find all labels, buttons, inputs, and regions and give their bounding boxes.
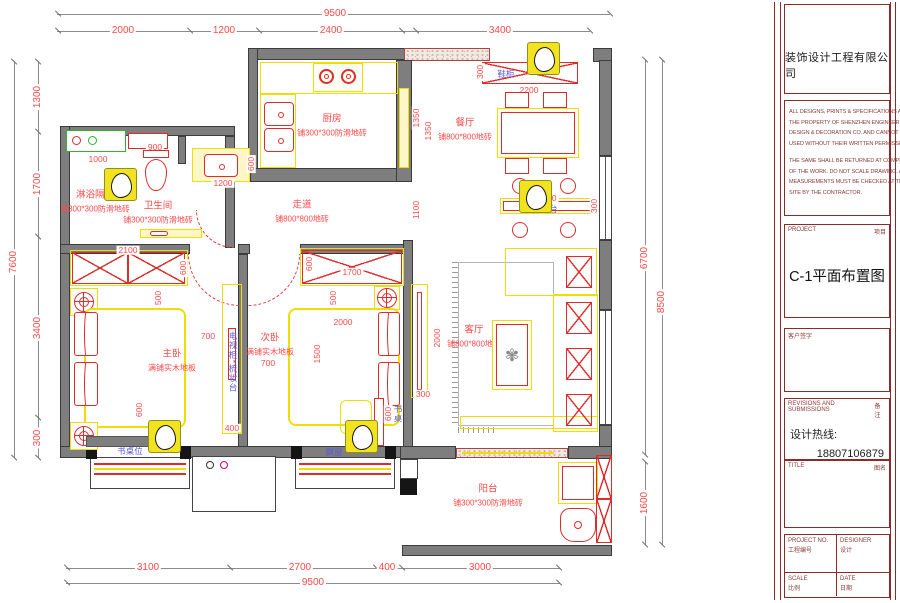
dim-bottom-4: 3000 (467, 563, 493, 573)
room-label-corridor: 走道 铺800*800地砖 (275, 198, 329, 225)
balcony-cabinet (596, 499, 612, 543)
dining-chair (505, 92, 529, 108)
sofa-pillow (566, 394, 592, 426)
glazing-line (299, 473, 391, 475)
date-label-en: DATE (840, 575, 886, 585)
disclaimer-line: MEASUREMENTS MUST BE CHECKED AT THE (789, 177, 885, 188)
company-box: 装饰设计工程有限公司 (784, 4, 890, 94)
bar-stool (560, 178, 576, 194)
title-label-en: TITLE (788, 463, 804, 472)
dim-master-wardrobe: 2100 (117, 246, 140, 255)
door-arc-second (248, 254, 300, 306)
disclaimer-line: ALL DESIGNS, PRINTS & SPECIFICATIONS ARE (789, 107, 885, 118)
dim-dresser: 400 (223, 424, 241, 433)
hotline-label: 设计热线: (790, 426, 884, 442)
room-name: 阳台 (453, 482, 523, 497)
scale-label-cn: 比例 (788, 585, 833, 595)
corridor-basin (204, 154, 238, 177)
project-label-en: PROJECT (788, 227, 816, 236)
disclaimer-line: DESIGN & DECORATION CO. AND CANNOT BE (789, 128, 885, 139)
dim-left-4: 300 (33, 428, 43, 449)
dim-right-total: 8500 (657, 289, 667, 315)
dim-top-1: 2000 (110, 26, 136, 36)
room-floor: 满铺实木地板 (246, 346, 294, 358)
sofa-pillow (566, 348, 592, 380)
callout-bubble-icon (345, 420, 378, 453)
dim-basin-depth: 600 (247, 155, 256, 173)
info-row-2: SCALE 比例 DATE 日期 (785, 573, 889, 596)
dim-right-seg: 6700 (640, 245, 650, 271)
dim-left-2: 1700 (33, 171, 43, 197)
glazing-line (94, 473, 186, 475)
date-label-cn: 日期 (840, 585, 886, 595)
room-name: 次卧 (246, 331, 294, 346)
master-wardrobe (128, 252, 185, 284)
project-no-label-cn: 工程编号 (788, 547, 833, 557)
room-floor: 铺300*300防滑地砖 (297, 127, 367, 139)
dim-vanity: 1000 (87, 155, 110, 164)
desk-spot-label: 书桌位 (117, 445, 143, 457)
disclaimer-line: SITE BY THE CONTRACTOR. (789, 188, 885, 199)
dim-master-wardrobe-depth: 600 (179, 259, 188, 277)
dim-master-side: 700 (199, 332, 217, 341)
date-cell: DATE 日期 (837, 573, 889, 596)
room-name: 厨房 (297, 112, 367, 127)
revisions-header: REVISIONS AND SUBMISSIONS 备注 (785, 399, 889, 420)
scale-label-en: SCALE (788, 575, 833, 585)
wall-top-kitchen (255, 48, 405, 60)
toilet-tank (143, 150, 169, 158)
drain-icon (574, 521, 582, 529)
mid-pier-box (192, 456, 276, 512)
pillow (74, 312, 98, 356)
kitchen-sink-bowl (264, 102, 294, 126)
dim-second-wardrobe-depth: 600 (305, 255, 314, 273)
room-name: 主卧 (148, 347, 196, 362)
wall-bath-stub (178, 136, 186, 164)
wall-bedroom-top-pier (238, 244, 250, 254)
dim-corridor-width: 1100 (412, 199, 421, 221)
stove-burner-icon (319, 69, 334, 84)
revisions-box: REVISIONS AND SUBMISSIONS 备注 设计热线: 18807… (784, 398, 890, 460)
kitchen-window-strip (399, 88, 409, 168)
stove-burner-icon (341, 69, 356, 84)
window-right-dining (599, 156, 612, 240)
dim-left-3: 3400 (33, 315, 43, 341)
designer-label-cn: 设计 (840, 547, 886, 557)
title-label-cn: 图名 (874, 463, 886, 472)
dim-bottom-2: 2700 (287, 563, 313, 573)
callout-bubble-icon (519, 180, 552, 213)
revisions-label-cn: 备注 (874, 401, 886, 419)
designer-label-en: DESIGNER (840, 537, 886, 547)
floorplan-sheet: 厨房 铺300*300防滑地砖 1350 1100 鞋柜 2200 300 餐厅… (0, 0, 900, 603)
balcony-left-box (400, 459, 418, 479)
title-block: 装饰设计工程有限公司 ALL DESIGNS, PRINTS & SPECIFI… (774, 2, 896, 600)
shoe-cabinet-label: 鞋柜 (497, 68, 514, 80)
room-floor: 铺800*800地砖 (438, 131, 492, 143)
room-label-kitchen: 厨房 铺300*300防滑地砖 (297, 112, 367, 139)
washing-machine (562, 466, 594, 500)
dim-second-gap: 500 (329, 289, 338, 307)
pillow (378, 312, 400, 356)
dim-second-bed-width: 2000 (332, 318, 355, 327)
dim-cabinet-depth: 300 (476, 63, 485, 81)
sofa-pillow (566, 256, 592, 288)
threshold-stone (150, 231, 168, 236)
wall-living-bottom-a (400, 446, 456, 459)
dim-line (38, 62, 39, 458)
disclaimer-line: OF THE WORK. DO NOT SCALE DRAWING. ALL (789, 167, 885, 178)
room-floor: 铺300*300防滑地砖 (453, 497, 523, 509)
drawing-name: C-1平面布置图 (785, 265, 889, 286)
info-row-1: PROJECT NO. 工程编号 DESIGNER 设计 (785, 535, 889, 573)
room-floor: 铺300*300防滑地砖 (60, 203, 130, 215)
title-box: TITLE 图名 (784, 460, 890, 528)
master-wardrobe (72, 252, 128, 284)
wall-top-entry-cabinet (404, 48, 490, 61)
bay-column (291, 446, 302, 459)
dim-left-1: 1300 (33, 84, 43, 110)
wall-kitchen-bottom (250, 168, 408, 182)
title-header: TITLE 图名 (785, 461, 889, 473)
dim-master-foot: 600 (135, 401, 144, 419)
dim-bottom-3: 400 (377, 563, 398, 573)
project-no-cell: PROJECT NO. 工程编号 (785, 535, 837, 573)
vanity-basin-icon (72, 136, 81, 145)
project-label-cn: 项目 (874, 227, 886, 236)
room-label-dining: 餐厅 铺800*800地砖 (438, 116, 492, 143)
disclaimer-text: ALL DESIGNS, PRINTS & SPECIFICATIONS ARE… (785, 101, 889, 205)
bay-column (385, 446, 396, 459)
dim-second-wardrobe: 1700 (341, 268, 364, 277)
room-label-balcony: 阳台 铺300*300防滑地砖 (453, 482, 523, 509)
room-floor: 铺300*300防滑地砖 (123, 214, 193, 226)
glazing-line (299, 468, 391, 470)
wall-balcony-bottom (402, 545, 612, 556)
glazing-line (299, 463, 391, 465)
window-right-living (599, 310, 612, 425)
room-name: 卫生间 (123, 199, 193, 214)
pillow (74, 362, 98, 406)
vent-circle (206, 461, 214, 469)
room-label-bathroom: 卫生间 铺300*300防滑地砖 (123, 199, 193, 226)
room-label-master: 主卧 满铺实木地板 (148, 347, 196, 374)
toilet (145, 159, 167, 191)
dining-chair (543, 92, 567, 108)
bar-stool (560, 222, 576, 238)
dim-bottom-1: 3100 (135, 563, 161, 573)
callout-bubble-icon (148, 420, 181, 453)
dining-table (501, 112, 575, 154)
client-sign-label: 客户签字 (788, 331, 812, 340)
dim-top-3: 2400 (318, 26, 344, 36)
balcony-door-leaf (462, 452, 554, 454)
room-name: 餐厅 (438, 116, 492, 131)
vanity-basin-icon (88, 136, 97, 145)
dining-chair (543, 158, 567, 174)
room-label-second: 次卧 满铺实木地板 (246, 331, 294, 358)
plant-icon: ✾ (505, 346, 519, 366)
info-grid-box: PROJECT NO. 工程编号 DESIGNER 设计 SCALE 比例 DA… (784, 534, 890, 598)
dresser-label: 电视柜*梳妆台 (227, 331, 239, 392)
sofa-pillow (566, 302, 592, 334)
dim-second-desk: 600 (384, 405, 393, 423)
disclaimer-line: USED WITHOUT THEIR WRITTEN PERMISSION. (789, 139, 885, 150)
disclaimer-line: THE PROPERTY OF SHENZHEN ENGINEERING (789, 118, 885, 129)
designer-cell: DESIGNER 设计 (837, 535, 889, 573)
callout-bubble-icon (527, 42, 560, 75)
dim-second-bed-length: 1500 (313, 343, 322, 366)
wall-right-a (599, 60, 612, 156)
dim-basin-width: 1200 (212, 179, 235, 188)
room-floor: 满铺实木地板 (148, 362, 196, 374)
room-name: 走道 (275, 198, 329, 213)
callout-bubble-icon (104, 168, 137, 201)
dim-kitchen-depth: 1350 (412, 107, 421, 130)
dim-bar-depth: 300 (590, 197, 599, 215)
lamp-icon (377, 288, 397, 308)
bay-column (180, 446, 191, 459)
balcony-cabinet (596, 455, 612, 499)
dim-top-total: 9500 (322, 9, 348, 19)
bay-window-label: 飘窗 (325, 446, 342, 458)
dim-dining-wall: 1350 (424, 120, 433, 143)
tv-panel (417, 292, 422, 390)
dim-master-gap: 500 (154, 289, 163, 307)
bar-stool (512, 222, 528, 238)
dim-bottom-total: 9500 (300, 578, 326, 588)
company-name: 装饰设计工程有限公司 (785, 49, 889, 81)
disclaimer-box: ALL DESIGNS, PRINTS & SPECIFICATIONS ARE… (784, 100, 890, 216)
disclaimer-line: THE SAME SHALL BE RETURNED AT COMPLETION (789, 156, 885, 167)
balcony-column (400, 478, 417, 495)
scale-cell: SCALE 比例 (785, 573, 837, 596)
dining-chair (505, 158, 529, 174)
client-signature-box: 客户签字 (784, 328, 890, 392)
glazing-line (94, 468, 186, 470)
dim-top-4: 3400 (487, 26, 513, 36)
revisions-label-en: REVISIONS AND SUBMISSIONS (788, 401, 874, 419)
dim-top-2: 1200 (211, 26, 237, 36)
wall-right-b (599, 240, 612, 310)
dim-right-balcony: 1600 (640, 490, 650, 516)
hotline-number: 18807106879 (790, 448, 884, 460)
dim-second-side: 700 (259, 359, 277, 368)
dim-tv-length: 2000 (433, 327, 442, 350)
wall-left (60, 126, 70, 456)
kitchen-sink-bowl (264, 128, 294, 152)
dim-left-total: 7600 (9, 249, 19, 275)
dim-tv-depth: 300 (414, 390, 432, 399)
project-box: PROJECT 项目 C-1平面布置图 (784, 224, 890, 318)
project-no-label-en: PROJECT NO. (788, 537, 833, 547)
client-header: 客户签字 (785, 329, 889, 341)
glazing-line (94, 463, 186, 465)
project-header: PROJECT 项目 (785, 225, 889, 237)
room-floor: 铺800*800地砖 (275, 213, 329, 225)
vent-circle (220, 461, 228, 469)
desk-label: 书桌 (392, 405, 404, 424)
hotline: 设计热线: 18807106879 (785, 420, 889, 460)
